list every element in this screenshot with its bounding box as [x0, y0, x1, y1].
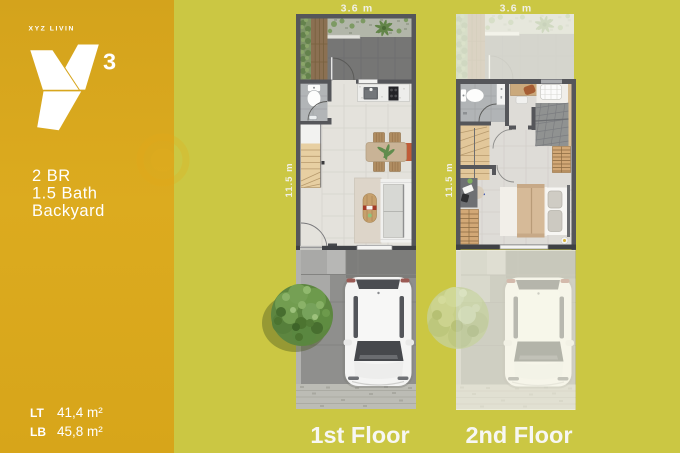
svg-text:2nd Floor: 2nd Floor	[465, 422, 572, 448]
svg-text:3.6 m: 3.6 m	[500, 3, 533, 15]
svg-text:1.5 Bath: 1.5 Bath	[32, 185, 97, 203]
svg-text:11.5 m: 11.5 m	[444, 162, 455, 197]
svg-text:41,4 m²: 41,4 m²	[57, 405, 103, 420]
svg-text:3: 3	[103, 49, 116, 75]
svg-text:Backyard: Backyard	[32, 202, 105, 220]
svg-text:11.5 m: 11.5 m	[284, 162, 295, 197]
svg-text:45,8 m²: 45,8 m²	[57, 424, 103, 439]
svg-text:2 BR: 2 BR	[32, 167, 71, 185]
svg-text:XYZ LIVIN: XYZ LIVIN	[29, 26, 75, 33]
svg-text:1st Floor: 1st Floor	[310, 422, 409, 448]
svg-text:3.6 m: 3.6 m	[341, 3, 374, 15]
svg-text:LT: LT	[30, 406, 44, 420]
svg-text:LB: LB	[30, 425, 46, 439]
